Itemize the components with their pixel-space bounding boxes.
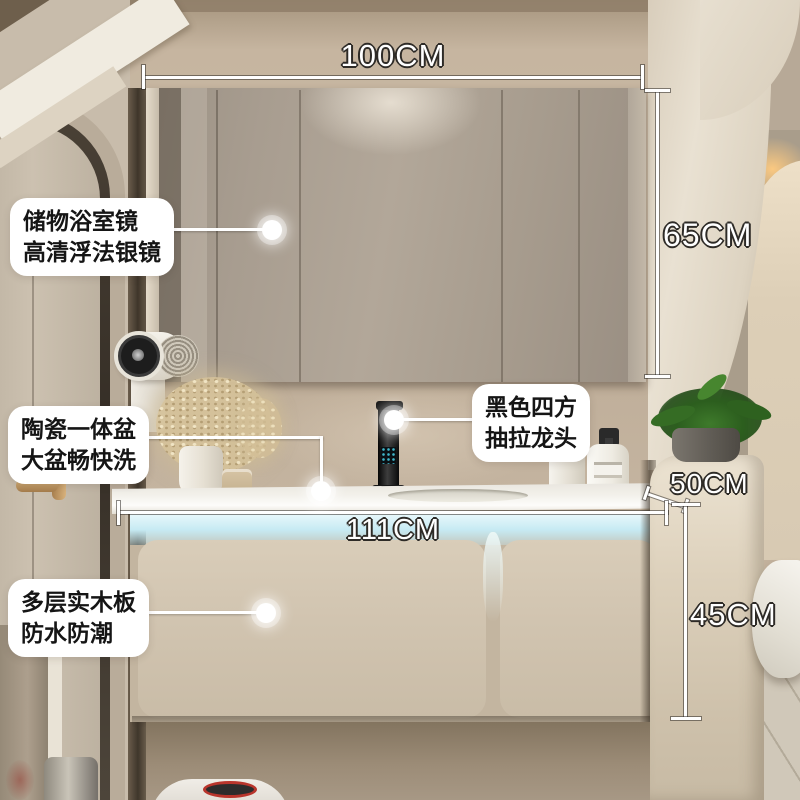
faucet-top-cap — [376, 401, 403, 410]
callout-faucet: 黑色四方 抽拉龙头 — [472, 384, 590, 462]
callout-board-line2: 防水防潮 — [21, 618, 136, 649]
callout-basin: 陶瓷一体盆 大盆畅快洗 — [8, 406, 149, 484]
dim-top-width-line — [143, 76, 643, 79]
plant-pot — [672, 428, 740, 462]
dim-cabinet-height-tick-top — [672, 503, 700, 506]
robot-vacuum-disc — [203, 781, 257, 798]
mirror-seam-1 — [216, 90, 218, 382]
callout-board-dot — [256, 603, 276, 623]
callout-board-line — [144, 611, 260, 614]
callout-mirror: 储物浴室镜 高清浮法银镜 — [10, 198, 174, 276]
callout-basin-line1: 陶瓷一体盆 — [21, 414, 136, 445]
callout-board: 多层实木板 防水防潮 — [8, 579, 149, 657]
callout-faucet-dot — [384, 410, 404, 430]
trash-bin — [44, 757, 98, 800]
dim-mirror-height-tick-bottom — [645, 375, 670, 378]
callout-mirror-line2: 高清浮法银镜 — [23, 237, 161, 268]
dried-flowers-sprig — [238, 398, 282, 458]
mirror-seam-3 — [501, 90, 503, 382]
glass-door-reflection — [6, 760, 34, 800]
callout-basin-line-v — [320, 436, 323, 484]
callout-mirror-dot — [262, 220, 282, 240]
cabinet-door-right — [500, 540, 658, 718]
dim-mirror-height-line — [656, 91, 659, 377]
hair-dryer-face-dot — [132, 349, 144, 361]
product-scene: 100CM 65CM 50CM 111CM 45CM 储物浴室镜 高清浮法银镜 … — [0, 0, 800, 800]
callout-basin-line-h — [144, 436, 323, 439]
dim-mirror-height-label: 65CM — [663, 217, 752, 254]
callout-basin-line2: 大盆畅快洗 — [21, 445, 136, 476]
dim-cabinet-height-line — [684, 505, 687, 719]
callout-faucet-line2: 抽拉龙头 — [485, 423, 577, 454]
callout-basin-dot — [311, 481, 331, 501]
dim-cabinet-height-label: 45CM — [690, 597, 777, 633]
dim-cabinet-width-label: 111CM — [118, 514, 668, 547]
dim-mirror-height-tick-top — [645, 89, 670, 92]
cabinet-door-left — [138, 540, 486, 718]
mirror-seam-4 — [578, 90, 580, 382]
ceiling-cove-shadow — [120, 0, 680, 12]
callout-faucet-line — [400, 418, 475, 421]
mirror-seam-2 — [299, 90, 301, 382]
callout-faucet-line1: 黑色四方 — [485, 392, 577, 423]
dim-top-width-label: 100CM — [143, 38, 643, 74]
callout-mirror-line — [168, 228, 266, 231]
mirror-cabinet — [146, 88, 646, 382]
callout-mirror-line1: 储物浴室镜 — [23, 206, 161, 237]
soap-pump-label — [594, 462, 622, 478]
dim-cabinet-height-tick-bottom — [671, 717, 701, 720]
faucet-display — [381, 447, 396, 464]
mirror-right-edge — [628, 88, 646, 382]
callout-board-line1: 多层实木板 — [21, 587, 136, 618]
basin-recess — [388, 489, 528, 502]
dim-depth-label: 50CM — [670, 468, 749, 500]
